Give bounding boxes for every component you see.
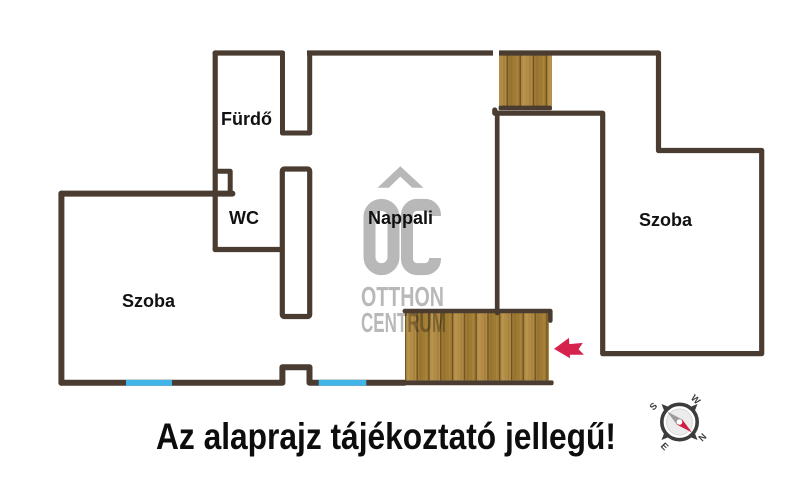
svg-text:Szoba: Szoba [639,210,693,230]
svg-text:Fürdő: Fürdő [221,109,272,129]
svg-text:Szoba: Szoba [122,291,176,311]
svg-text:CENTRUM: CENTRUM [361,307,446,338]
svg-text:Nappali: Nappali [368,208,433,228]
svg-text:WC: WC [229,208,259,228]
svg-text:Az alaprajz tájékoztató jelleg: Az alaprajz tájékoztató jellegű! [156,416,616,457]
